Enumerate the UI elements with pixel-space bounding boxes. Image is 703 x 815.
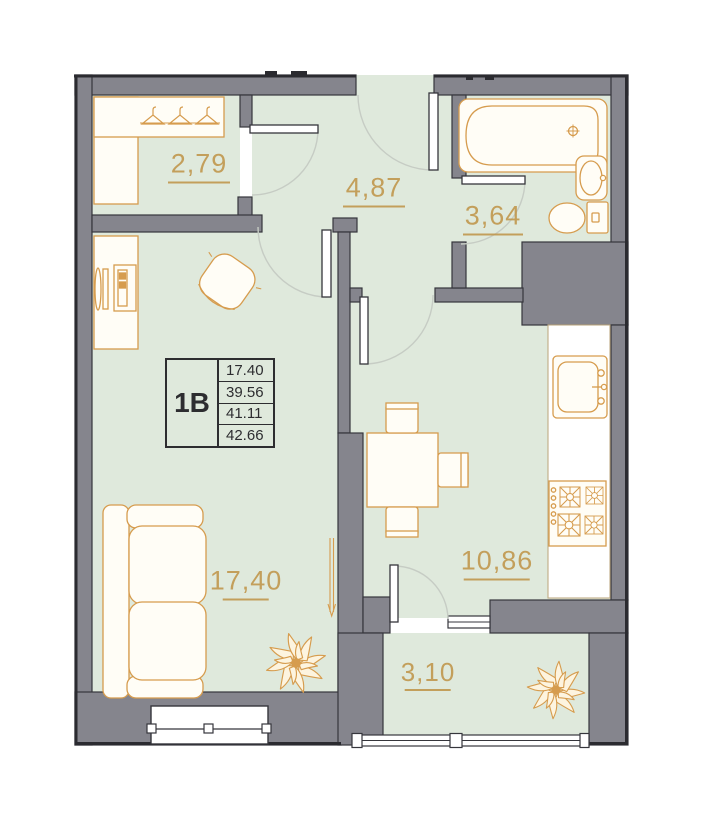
- monitor-icon: [95, 268, 101, 310]
- wall-central-upper: [338, 232, 350, 433]
- living-room-area-label: 17,40: [210, 568, 283, 601]
- kitchen-area-label: 10,86: [461, 548, 534, 581]
- washbasin-icon: [576, 156, 607, 200]
- wall-wardrobe-right: [240, 95, 252, 127]
- desk-icon: [94, 236, 138, 349]
- wall-wardrobe-bottom: [92, 215, 262, 232]
- kitchen-sink-icon: [553, 356, 607, 418]
- wall-top-right: [434, 75, 628, 95]
- living-room-door-leaf: [322, 230, 331, 297]
- bathroom-door-leaf: [462, 176, 525, 184]
- wall-block-right: [522, 242, 628, 325]
- stove-icon: [549, 481, 606, 546]
- balcony-area-label: 3,10: [401, 659, 456, 691]
- kitchen-counter-icon: [548, 325, 610, 598]
- floor-plan-drawing: [0, 0, 703, 815]
- wall-wardrobe-stub: [238, 197, 252, 217]
- unit-area-value: 39.56: [219, 382, 273, 404]
- dining-chair-bottom-icon: [386, 507, 418, 537]
- dining-chair-right-icon: [438, 453, 468, 487]
- toilet-icon: [549, 202, 608, 233]
- dining-chair-top-icon: [386, 403, 418, 433]
- kitchen-door-leaf: [360, 297, 368, 364]
- wardrobe-area-label: 2,79: [168, 151, 230, 184]
- wall-balcony-right: [589, 633, 628, 745]
- hallway-area-label: 4,87: [343, 175, 405, 208]
- wall-hall-kitchen: [435, 288, 523, 302]
- unit-area-value: 42.66: [219, 425, 273, 446]
- unit-area-value: 17.40: [219, 360, 273, 382]
- wall-central-cap: [333, 218, 357, 232]
- living-room-window: [147, 706, 271, 744]
- entrance-door-leaf: [429, 93, 438, 170]
- wall-left: [75, 75, 92, 745]
- entrance-floor: [356, 75, 434, 95]
- bathroom-area-label: 3,64: [463, 203, 523, 236]
- wall-top-left: [75, 75, 356, 95]
- unit-area-value: 41.11: [219, 404, 273, 426]
- wardrobe-door-leaf: [250, 125, 318, 133]
- sofa-icon: [103, 505, 206, 698]
- floor-plan: 2,79 4,87 3,64 17,40 10,86 3,10 1B 17.40…: [0, 0, 703, 815]
- balcony-window: [448, 616, 490, 628]
- wall-bathroom-stub: [452, 242, 466, 288]
- wall-balcony-left: [338, 633, 383, 745]
- balcony-door-leaf: [390, 565, 398, 622]
- wall-balcony-step: [363, 597, 390, 633]
- balcony-glazing: [352, 734, 589, 748]
- unit-id: 1B: [167, 360, 219, 446]
- unit-info-card: 1B 17.40 39.56 41.11 42.66: [165, 358, 275, 448]
- wall-kitchen-bottom: [490, 600, 628, 633]
